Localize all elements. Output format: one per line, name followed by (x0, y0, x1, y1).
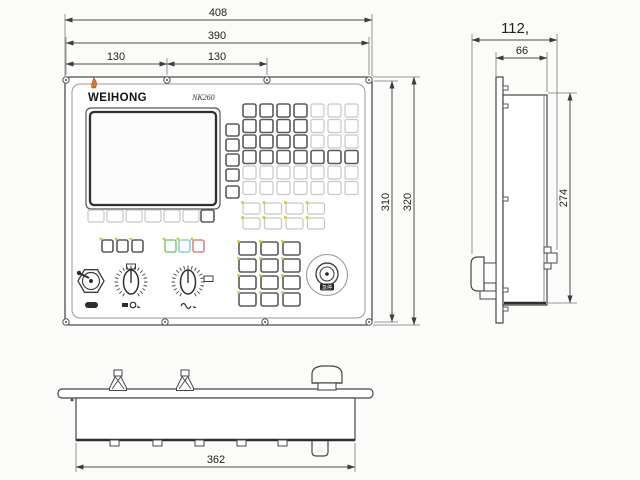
mounting-clamps (110, 370, 194, 391)
key (226, 169, 239, 181)
key (345, 182, 358, 195)
key-indicator-dot (259, 291, 262, 294)
screen-side-keys (226, 124, 239, 198)
key (260, 151, 273, 164)
key (277, 151, 290, 164)
key-indicator-dot (281, 257, 284, 260)
key (277, 135, 290, 148)
key (345, 151, 358, 164)
key (311, 135, 324, 148)
key (193, 240, 204, 252)
front-view: 维 宏 408 390 130 130 (63, 7, 420, 325)
key (283, 293, 300, 306)
key (345, 120, 358, 133)
key (265, 203, 282, 214)
key (117, 240, 128, 252)
key-indicator-dot (306, 201, 309, 204)
key (311, 182, 324, 195)
bottom-tab (195, 440, 204, 446)
key-indicator-dot (241, 201, 244, 204)
side-view: 112, 66 274 (471, 20, 577, 323)
bottom-view: 362 (58, 366, 373, 472)
key (283, 242, 300, 255)
key (165, 240, 176, 252)
key (179, 240, 190, 252)
dim-hole-pitch: 130 130 (66, 51, 267, 75)
key-indicator-dot (284, 216, 287, 219)
key (311, 104, 324, 117)
key-indicator-dot (284, 201, 287, 204)
key (102, 240, 113, 252)
key-indicator-dot (281, 240, 284, 243)
brand-logo: WEIHONG (88, 92, 147, 104)
key (328, 104, 341, 117)
key-indicator-dot (177, 238, 180, 241)
key (277, 120, 290, 133)
svg-text:112,: 112, (501, 20, 529, 37)
key (286, 203, 303, 214)
key-indicator-dot (263, 216, 266, 219)
bottom-tab (278, 440, 287, 446)
key (260, 104, 273, 117)
key (239, 276, 256, 289)
lcd-screen (86, 108, 220, 209)
svg-text:274: 274 (558, 189, 570, 207)
key-indicator-dot (115, 238, 118, 241)
key-indicator-dot (259, 257, 262, 260)
key (260, 182, 273, 195)
plate-screw (71, 399, 74, 402)
key (243, 135, 256, 148)
key-switch-label (85, 302, 98, 308)
key (260, 135, 273, 148)
key (294, 151, 307, 164)
key-indicator-dot (281, 274, 284, 277)
key (243, 182, 256, 195)
svg-text:362: 362 (207, 454, 225, 466)
key (164, 210, 180, 222)
dim-body-height: 274 (548, 93, 577, 303)
key (286, 218, 303, 229)
key-indicator-dot (281, 291, 284, 294)
key (243, 151, 256, 164)
key (132, 240, 143, 252)
key-indicator-dot (163, 238, 166, 241)
key (239, 293, 256, 306)
key (243, 120, 256, 133)
svg-text:390: 390 (208, 30, 226, 42)
key (345, 135, 358, 148)
key (239, 259, 256, 272)
side-estop-protrusion (471, 257, 496, 299)
key-indicator-dot (237, 240, 240, 243)
side-front-plate (496, 77, 503, 323)
key (294, 182, 307, 195)
key-indicator-dot (263, 201, 266, 204)
key-indicator-dot (237, 291, 240, 294)
key (265, 218, 282, 229)
key (311, 166, 324, 179)
bottom-estop-mushroom (312, 366, 342, 390)
key (277, 166, 290, 179)
svg-text:320: 320 (402, 193, 414, 211)
model-label: NK260 (191, 93, 215, 102)
key (239, 242, 256, 255)
svg-text:130: 130 (107, 51, 125, 63)
dim-mount-height: 310 (374, 81, 398, 322)
key (345, 166, 358, 179)
key (243, 104, 256, 117)
key (261, 276, 278, 289)
key (308, 203, 325, 214)
panel-dimension-drawing: 维 宏 408 390 130 130 (0, 0, 640, 480)
key (328, 151, 341, 164)
key (260, 166, 273, 179)
soft-keys-row (88, 210, 214, 222)
estop-label: 急停 (322, 284, 332, 291)
key (243, 166, 256, 179)
dim-body-width: 362 (76, 443, 355, 472)
mounting-clamp (177, 370, 194, 391)
bottom-tab (110, 440, 119, 446)
key (261, 293, 278, 306)
key (107, 210, 123, 222)
key (345, 104, 358, 117)
key-indicator-dot (100, 238, 103, 241)
key (328, 182, 341, 195)
key-indicator-dot (306, 216, 309, 219)
bottom-connector (312, 441, 328, 456)
key (243, 218, 260, 229)
key (226, 124, 239, 136)
key (201, 210, 214, 222)
key (277, 182, 290, 195)
key-indicator-dot (259, 240, 262, 243)
key (145, 210, 161, 222)
key-indicator-dot (130, 238, 133, 241)
side-enclosure (503, 95, 547, 305)
key-indicator-dot (241, 216, 244, 219)
key (277, 104, 290, 117)
dim-body-depth: 66 (496, 45, 547, 92)
key (261, 259, 278, 272)
key (261, 242, 278, 255)
key (328, 166, 341, 179)
key (243, 203, 260, 214)
key (226, 186, 239, 198)
svg-text:408: 408 (209, 7, 227, 19)
mounting-clamp (110, 370, 127, 391)
key-indicator-dot (259, 274, 262, 277)
key (260, 120, 273, 133)
estop-button: 急停 (307, 255, 348, 296)
svg-text:130: 130 (208, 51, 226, 63)
key (328, 135, 341, 148)
key (88, 210, 104, 222)
key (283, 276, 300, 289)
key (183, 210, 199, 222)
key (294, 135, 307, 148)
key (311, 151, 324, 164)
bottom-tab (237, 440, 246, 446)
svg-text:66: 66 (516, 45, 528, 57)
key (308, 218, 325, 229)
key (328, 120, 341, 133)
key-indicator-dot (237, 257, 240, 260)
bottom-tab (153, 440, 162, 446)
svg-text:310: 310 (380, 193, 392, 211)
key (226, 154, 239, 166)
key (311, 120, 324, 133)
key (283, 259, 300, 272)
key (294, 166, 307, 179)
key-indicator-dot (237, 274, 240, 277)
key (226, 139, 239, 151)
bottom-enclosure (76, 398, 355, 440)
key (294, 104, 307, 117)
key-indicator-dot (191, 238, 194, 241)
key (294, 120, 307, 133)
key (126, 210, 142, 222)
